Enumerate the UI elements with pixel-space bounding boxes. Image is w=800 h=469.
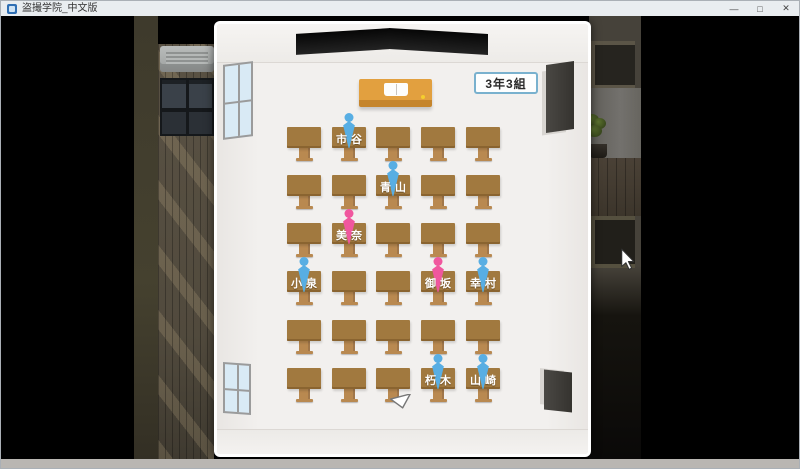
class-label-badge: 3年3組 <box>474 72 538 94</box>
mouse-cursor-icon <box>619 248 636 271</box>
desk-r3-c1[interactable] <box>287 223 321 259</box>
desk-r1-c5[interactable] <box>466 127 500 163</box>
desk-r4-c4[interactable]: 御坂 <box>421 271 455 307</box>
seat-name-label: 朽木 <box>421 372 455 388</box>
plant-pot <box>589 144 607 158</box>
desk-r4-c2[interactable] <box>332 271 366 307</box>
desk-r5-c3[interactable] <box>376 320 410 356</box>
desk-r6-c5[interactable]: 山崎 <box>466 368 500 404</box>
window-title: 盗撮学院_中文版 <box>22 1 98 16</box>
desk-r2-c2[interactable] <box>332 175 366 211</box>
seat-name-label: 幸村 <box>466 275 500 291</box>
desk-r5-c2[interactable] <box>332 320 366 356</box>
desk-r1-c4[interactable] <box>421 127 455 163</box>
minimize-icon[interactable]: — <box>721 1 747 16</box>
classroom-room: 3年3組 市谷青山美奈小泉御坂幸村朽木山崎 <box>217 24 588 454</box>
title-bar: 盗撮学院_中文版 — □ ✕ <box>1 1 799 16</box>
wall-pillar <box>134 16 158 459</box>
hallway-door-frame <box>591 41 635 89</box>
desk-r3-c2[interactable]: 美奈 <box>332 223 366 259</box>
seat-name-label: 美奈 <box>332 227 366 243</box>
classroom-door-front[interactable] <box>546 61 574 133</box>
desk-r1-c1[interactable] <box>287 127 321 163</box>
seat-name-label: 山崎 <box>466 372 500 388</box>
hallway-floor <box>589 158 641 216</box>
seat-name-label: 小泉 <box>287 275 321 291</box>
desk-r2-c1[interactable] <box>287 175 321 211</box>
back-wall <box>217 429 588 454</box>
classroom-window-icon <box>223 61 253 140</box>
desk-r4-c5[interactable]: 幸村 <box>466 271 500 307</box>
desk-r2-c4[interactable] <box>421 175 455 211</box>
maximize-icon[interactable]: □ <box>747 1 773 16</box>
desk-r2-c3[interactable]: 青山 <box>376 175 410 211</box>
desk-r4-c3[interactable] <box>376 271 410 307</box>
desk-r6-c1[interactable] <box>287 368 321 404</box>
desk-r5-c1[interactable] <box>287 320 321 356</box>
background-hallway-left <box>134 16 214 459</box>
classroom-window-icon <box>223 362 251 415</box>
desk-r2-c5[interactable] <box>466 175 500 211</box>
desk-r6-c2[interactable] <box>332 368 366 404</box>
ac-vent <box>160 46 214 72</box>
game-screen: 3年3組 市谷青山美奈小泉御坂幸村朽木山崎 <box>1 16 800 469</box>
podium-dot <box>421 95 425 99</box>
app-icon <box>7 4 17 14</box>
seat-name-label: 御坂 <box>421 275 455 291</box>
close-icon[interactable]: ✕ <box>773 1 799 16</box>
book-icon <box>384 83 408 96</box>
desk-r1-c3[interactable] <box>376 127 410 163</box>
desk-r4-c1[interactable]: 小泉 <box>287 271 321 307</box>
desk-r1-c2[interactable]: 市谷 <box>332 127 366 163</box>
desk-r3-c4[interactable] <box>421 223 455 259</box>
hallway-window <box>160 78 214 136</box>
desk-r5-c4[interactable] <box>421 320 455 356</box>
desk-r3-c5[interactable] <box>466 223 500 259</box>
down-arrow-indicator[interactable] <box>389 394 413 410</box>
seat-name-label: 青山 <box>376 179 410 195</box>
teacher-desk <box>359 79 432 107</box>
classroom-door-back[interactable] <box>544 370 572 413</box>
desk-r6-c4[interactable]: 朽木 <box>421 368 455 404</box>
background-hallway-right <box>589 16 641 459</box>
classroom-map-overlay: 3年3組 市谷青山美奈小泉御坂幸村朽木山崎 <box>214 21 591 457</box>
seat-name-label: 市谷 <box>332 131 366 147</box>
bottom-letterbox <box>1 459 800 469</box>
game-window: 盗撮学院_中文版 — □ ✕ <box>0 0 800 469</box>
desk-r3-c3[interactable] <box>376 223 410 259</box>
desk-r5-c5[interactable] <box>466 320 500 356</box>
window-controls: — □ ✕ <box>721 1 799 16</box>
